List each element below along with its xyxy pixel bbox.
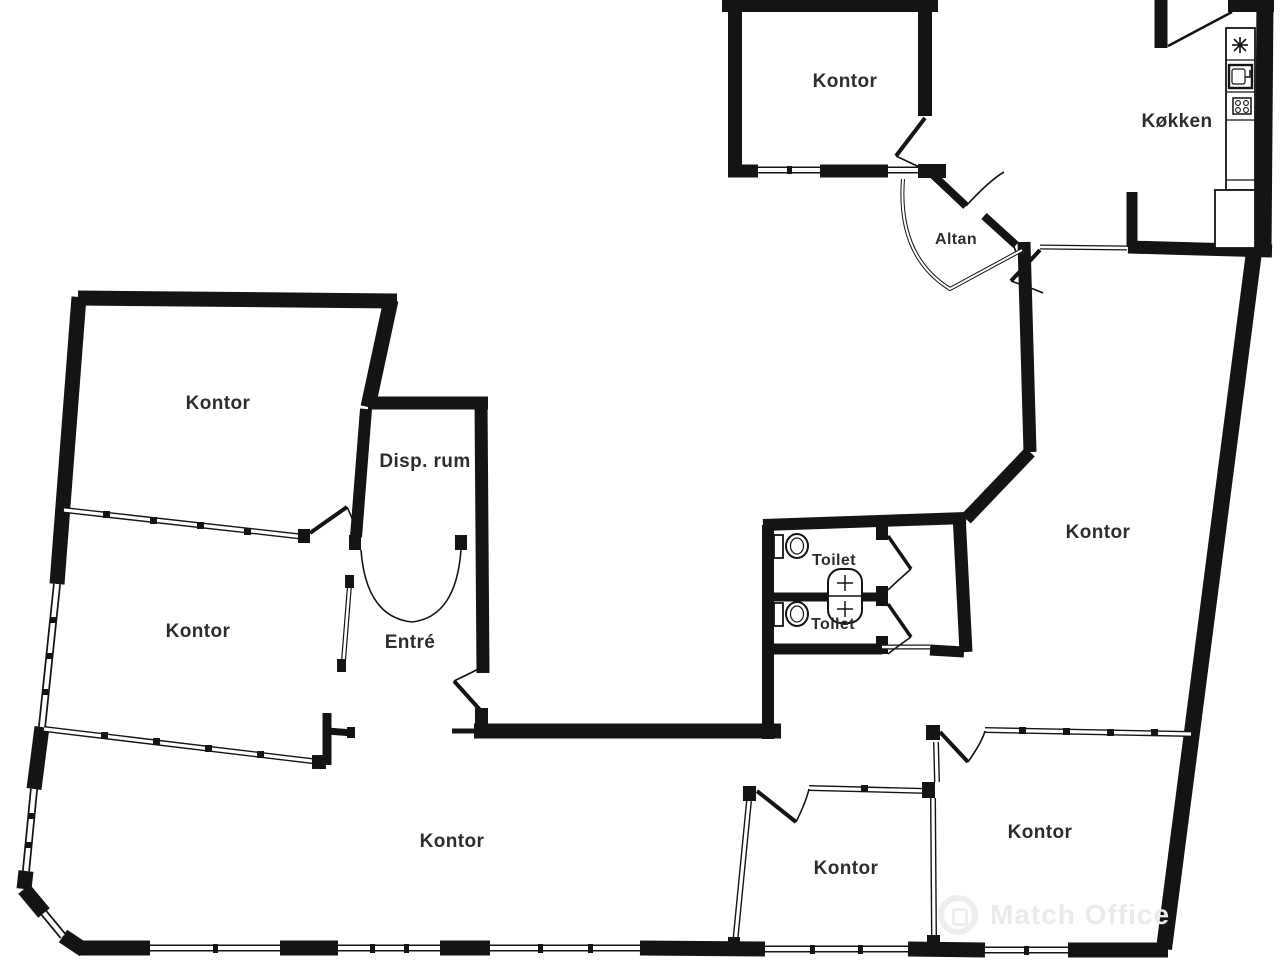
room-label-toilet-top: Toilet <box>812 552 856 570</box>
stove-icon <box>1233 98 1251 114</box>
room-label-kontor-bottom-large: Kontor <box>420 831 485 853</box>
room-label-kontor-bottom-right: Kontor <box>1008 822 1073 844</box>
watermark-text: Match Office <box>990 899 1170 931</box>
watermark: Match Office <box>938 895 1170 935</box>
room-label-kontor-top-right: Kontor <box>813 71 878 93</box>
room-label-toilet-bottom: Toilet <box>811 616 855 634</box>
room-label-kontor-top-left: Kontor <box>186 393 251 415</box>
room-label-entre: Entré <box>385 632 436 654</box>
floor-plan: KontorKøkkenAltanKontorDisp. rumKontorEn… <box>0 0 1280 960</box>
snowflake-icon <box>1232 37 1248 53</box>
counter-outline <box>1215 28 1255 248</box>
floor-plan-drawing <box>0 0 1280 960</box>
sink-basin-icon <box>828 569 862 623</box>
kitchen-sink-icon <box>1229 65 1252 88</box>
room-label-disp-rum: Disp. rum <box>379 451 470 473</box>
room-label-kontor-mid-left: Kontor <box>166 621 231 643</box>
toilet-icon <box>774 534 808 558</box>
room-label-kokken: Køkken <box>1141 111 1212 133</box>
toilet-icon <box>774 602 808 626</box>
room-label-kontor-bottom-middle: Kontor <box>814 858 879 880</box>
room-label-altan: Altan <box>935 231 977 249</box>
outer-walls <box>24 0 1274 950</box>
match-office-logo-icon <box>938 895 978 935</box>
room-label-kontor-right: Kontor <box>1066 522 1131 544</box>
